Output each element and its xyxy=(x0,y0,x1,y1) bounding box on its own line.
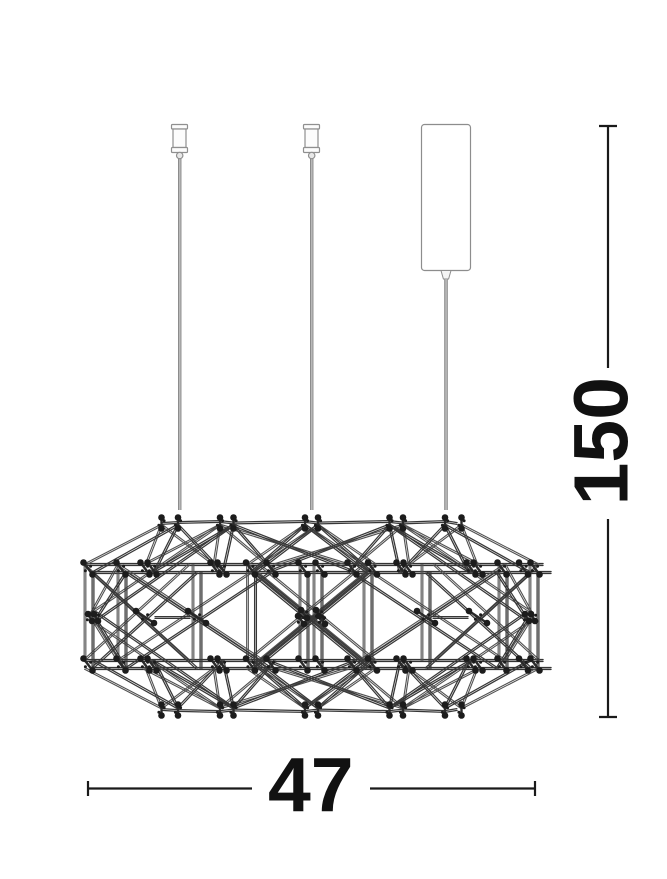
svg-text:150: 150 xyxy=(559,377,645,505)
svg-text:47: 47 xyxy=(268,742,354,828)
